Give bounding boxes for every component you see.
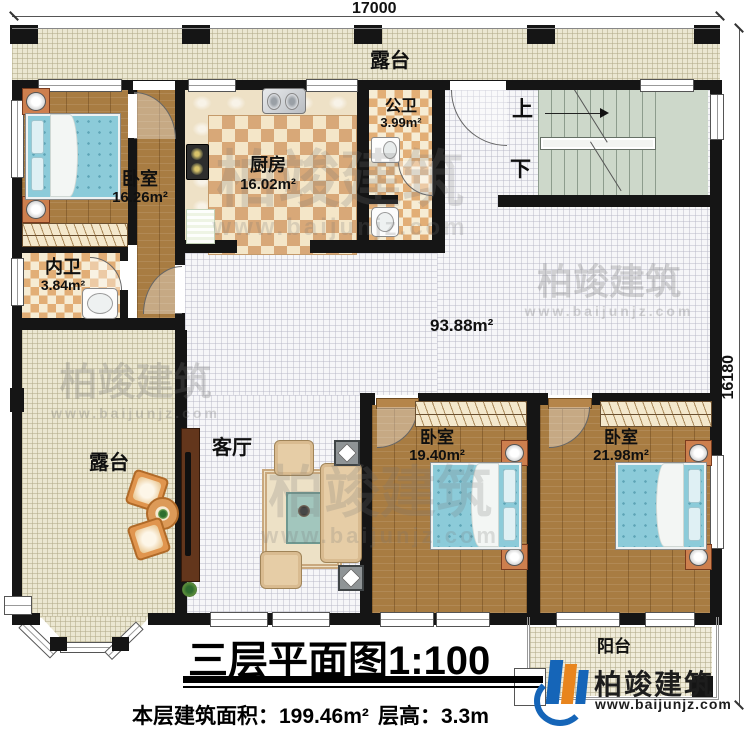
stair-up-arrow-line <box>545 113 605 114</box>
bay-post <box>112 637 129 651</box>
window-right-top <box>710 94 724 140</box>
window-privatebath-left <box>11 258 24 306</box>
dim-right-value: 16180 <box>720 355 738 400</box>
kitchen-name: 厨房 <box>228 156 308 176</box>
window-stairhall-top <box>640 79 694 92</box>
armchair-bottom <box>260 551 302 589</box>
terrace-left-label: 露台 <box>76 452 142 474</box>
title-rule-thick <box>183 676 543 683</box>
kitchen-sink <box>262 88 306 114</box>
brand-logo-icon <box>534 658 590 718</box>
window-kitchen-top-a <box>188 79 236 92</box>
bedroom-tl-area: 16.26m² <box>94 190 186 207</box>
bedroom-l-name: 卧室 <box>592 429 650 448</box>
window-living-bottom-a <box>210 612 268 627</box>
floor-area-note: 本层建筑面积：199.46m² <box>132 700 369 729</box>
door-opening-hall-top <box>133 81 175 90</box>
story-height-note: 层高：3.3m <box>378 700 489 729</box>
living-room-label: 客厅 <box>204 437 260 459</box>
kitchen-area: 16.02m² <box>228 177 308 194</box>
floor-plan: 17000 16180 上 下 <box>0 0 750 729</box>
watermark-name: 柏竣建筑 <box>59 362 211 404</box>
watermark-name: 柏竣建筑 <box>537 261 681 302</box>
wardrobe-s <box>415 401 527 427</box>
plant <box>182 582 197 597</box>
watermark: 柏竣建筑 www.baijunjz.com <box>18 364 253 420</box>
private-bath-area: 3.84m² <box>30 278 96 293</box>
floor-area-label: 本层建筑面积： <box>132 705 279 728</box>
watermark-url: www.baijunjz.com <box>18 406 253 420</box>
bedroom-l-area: 21.98m² <box>586 448 656 465</box>
dim-top-line <box>12 16 722 17</box>
bedroom-s-name: 卧室 <box>408 429 466 448</box>
private-bath-name: 内卫 <box>32 258 94 278</box>
window-bedroomtl-top <box>38 79 122 92</box>
wall-hall-bottom <box>128 318 185 330</box>
stair-up-label: 上 <box>512 98 533 121</box>
wall-privatebath-bottom <box>12 318 128 330</box>
watermark: 柏竣建筑 www.baijunjz.com <box>100 465 660 547</box>
watermark: 柏竣建筑 www.baijunjz.com <box>478 264 740 318</box>
blanket-fold <box>656 463 684 547</box>
bay-post <box>50 637 67 651</box>
wall-privatebath-right-b <box>120 290 128 318</box>
door-opening-stairhall <box>450 81 506 90</box>
end-table <box>338 565 364 591</box>
terrace-edge-line <box>12 28 720 29</box>
watermark-name: 柏竣建筑 <box>268 461 492 524</box>
logo-swoosh <box>534 676 586 726</box>
pillow <box>688 507 701 541</box>
watermark-url: www.baijunjz.com <box>478 304 740 318</box>
window-bedroom-s-bottom-b <box>436 612 490 627</box>
public-bath-area: 3.99m² <box>368 116 434 130</box>
nightstand <box>22 196 50 223</box>
wall-privatebath-right-a <box>120 253 128 261</box>
pillow <box>31 157 44 191</box>
stair-handrail <box>540 137 656 150</box>
public-bath-name: 公卫 <box>370 98 432 116</box>
bedroom-tl-name: 卧室 <box>94 170 186 190</box>
dim-right-line <box>739 28 740 706</box>
window-living-bottom-b <box>272 612 330 627</box>
nightstand <box>22 88 50 115</box>
open-area-label: 93.88m² <box>430 317 520 336</box>
window-kitchen-top-b <box>306 79 358 92</box>
bay-post <box>148 613 175 625</box>
bay-side-box <box>4 596 32 615</box>
watermark-url: www.baijunjz.com <box>100 525 660 547</box>
bedroom-s-area: 19.40m² <box>402 448 472 465</box>
balcony-label: 阳台 <box>586 638 642 657</box>
window-bedroom-l-right <box>710 455 724 549</box>
terrace-top-label: 露台 <box>352 50 428 72</box>
title-rule-thin <box>183 686 543 688</box>
floor-area-value: 199.46m² <box>279 705 369 728</box>
story-height-label: 层高： <box>378 705 441 728</box>
window-bedroom-s-bottom-a <box>380 612 434 627</box>
watermark-url: www.baijunjz.com <box>70 216 610 240</box>
pillow <box>31 120 44 154</box>
brand-url: www.baijunjz.com <box>595 696 732 712</box>
wardrobe-l <box>600 401 712 427</box>
pillow <box>688 469 701 503</box>
stair-arrowhead <box>600 108 614 118</box>
story-height-value: 3.3m <box>441 705 489 728</box>
